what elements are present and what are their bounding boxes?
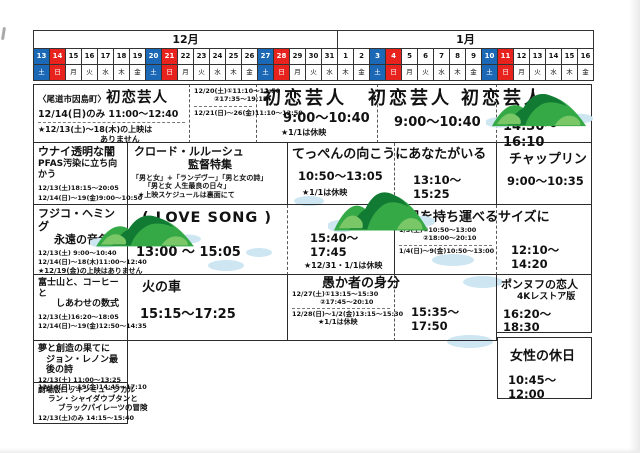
cell-text: 10:50～13:05 [298,170,390,184]
date-cell: 23 [194,49,210,65]
cell-text: ★1/1は休映 [318,318,390,326]
cell-text: 「男と女」+「ランデヴー」「男と女の詩」 [132,174,283,182]
weekday-cell: 火 [418,65,434,81]
schedule-sheet: 12月1月 1314151617181920212223242526272829… [0,0,640,453]
cell-text: てっぺんの向こうにあなたがいる [292,147,390,162]
cell-divider [292,308,390,309]
cell-pont-neuf: ポンヌフの恋人4Kレストア版16:20～18:30 [497,275,592,333]
date-cell: 10 [482,49,498,65]
cell-text: ウナイ透明な闇 [38,146,123,159]
cell-chaplin: チャップリン9:00～10:35 [497,143,592,205]
date-cell: 16 [82,49,98,65]
cell-orokamono-2: 15:35～17:50 [395,275,497,341]
island-icon [90,208,202,250]
weekday-cell: 金 [354,65,370,81]
weekday-cell: 水 [322,65,338,81]
weekday-cell: 土 [482,65,498,81]
date-cell: 2 [354,49,370,65]
weekday-cell: 水 [546,65,562,81]
island-icon [328,183,436,235]
weekday-cell: 木 [226,65,242,81]
month-cell: 1月 [338,31,594,49]
date-cell: 19 [130,49,146,65]
weekday-cell: 火 [306,65,322,81]
cell-text: ポンヌフの恋人 [501,279,587,292]
weekday-cell: 土 [370,65,386,81]
cell-text: PFAS汚染に立ち向かう [38,159,123,180]
date-cell: 28 [274,49,290,65]
weekday-cell: 日 [498,65,514,81]
date-cell: 20 [146,49,162,65]
cell-divider [194,106,252,107]
date-cell: 9 [466,49,482,65]
calendar: 12月1月 1314151617181920212223242526272829… [33,30,594,81]
scan-edge-right [629,0,640,453]
cell-hatsukoi-week3: 初恋芸人9:00～10:40★1/1は休映 [257,84,378,143]
cell-text: ②18:00～20:10 [423,235,492,243]
date-cell: 7 [434,49,450,65]
cell-text: 15:40～17:45 [310,232,390,259]
cell-text: しあわせの数式 [56,299,123,310]
date-cell: 21 [162,49,178,65]
cell-text: ★上映スケジュールは裏面にて [138,191,283,199]
cell-text: 夢と創造の果てに [38,344,123,355]
cell-ani-size-2: 12:10～14:20 [497,205,592,275]
cell-text: 4Kレストア版 [517,292,587,303]
cell-text: 初恋芸人 [263,88,373,109]
date-cell: 24 [210,49,226,65]
cell-text: 16:20～18:30 [503,308,587,335]
weekday-cell: 木 [114,65,130,81]
island-icon [486,86,594,130]
weekday-cell: 金 [130,65,146,81]
cell-text: ②17:35～19:15 [214,96,252,104]
cell-text: 「男と女 人生最良の日々」 [144,182,283,190]
weekday-cell: 火 [82,65,98,81]
cell-text: 12/21(日)～26(金)11:10～12:50 [194,110,252,118]
calendar-weekday-row: 土日月火水木金土日月火水木金土日月火水木金土日月火水木金土日月火水木金 [34,65,594,81]
weekday-cell: 水 [98,65,114,81]
cell-hinokuruma: 火の車15:15～17:25 [128,275,288,341]
cell-orokamono-1: 愚か者の身分12/27(土)①13:15～15:30②17:45～20:1012… [288,275,395,341]
date-cell: 1 [338,49,354,65]
cell-text: 12/13(土) 9:00～10:40 [38,250,123,258]
cell-text: ★12/13(土)～18(木)の上映は [38,125,185,134]
weekday-cell: 木 [450,65,466,81]
cell-text: 12/14(日)～19(金)9:00～10:50 [38,195,123,203]
date-cell: 4 [386,49,402,65]
calendar-date-row: 1314151617181920212223242526272829303112… [34,49,594,65]
date-cell: 22 [178,49,194,65]
cell-divider [399,245,492,246]
cell-text: ブラックパイレーツの冒険 [58,404,123,413]
cell-text: ②17:45～20:10 [320,299,390,307]
date-cell: 12 [514,49,530,65]
weekday-cell: 火 [194,65,210,81]
date-cell: 8 [450,49,466,65]
cell-yume-john-lennon: 夢と創造の果てにジョン・レノン最後の詩12/13(土) 11:00～13:251… [33,341,128,383]
scan-mark [1,27,6,40]
date-cell: 11 [498,49,514,65]
date-cell: 14 [50,49,66,65]
weekday-cell: 金 [242,65,258,81]
cell-text: 9:00～10:40 [283,111,373,126]
date-cell: 15 [66,49,82,65]
cell-text: 12/13(土)18:15～20:05 [38,185,123,193]
weekday-cell: 木 [338,65,354,81]
cell-text: 10:45～12:00 [508,374,587,401]
cell-text: 9:00～10:35 [507,175,587,189]
date-cell: 5 [402,49,418,65]
cell-text: 12/14(日)のみ 11:00～12:40 [38,109,185,120]
weekday-cell: 水 [210,65,226,81]
weekday-cell: 月 [66,65,82,81]
cell-text: 愚か者の身分 [322,276,390,291]
cell-text: ★1/1は休映 [281,128,373,137]
weekday-cell: 水 [434,65,450,81]
cell-hatsukoi-week2: 12/20(土)①11:10～12:50②17:35～19:1512/21(日)… [190,84,257,143]
cell-text: 12/13(土)16:20～18:05 [38,314,123,322]
date-cell: 13 [530,49,546,65]
date-cell: 6 [418,49,434,65]
cell-fujisan-coffee: 富士山と、コーヒーとしあわせの数式12/13(土)16:20～18:0512/1… [33,275,128,341]
date-cell: 3 [370,49,386,65]
calendar-month-row: 12月1月 [34,31,594,49]
cell-unai-pfas: ウナイ透明な闇PFAS汚染に立ち向かう12/13(土)18:15～20:0512… [33,143,128,205]
date-cell: 15 [562,49,578,65]
cell-text: ★12/31・1/1は休映 [304,261,390,270]
date-cell: 16 [578,49,594,65]
date-cell: 26 [242,49,258,65]
weekday-cell: 日 [162,65,178,81]
weekday-cell: 土 [34,65,50,81]
weekday-cell: 木 [562,65,578,81]
cell-josei-holiday: 女性の休日10:45～12:00 [497,337,592,399]
weekday-cell: 金 [578,65,594,81]
date-cell: 29 [290,49,306,65]
cell-text: ジョン・レノン最後の詩 [46,355,123,376]
weekday-cell: 月 [178,65,194,81]
date-cell: 13 [34,49,50,65]
cell-text: 15:35～17:50 [411,306,492,333]
cell-text: 監督特集 [188,159,283,172]
weekday-cell: 土 [258,65,274,81]
cell-lelouch-tokushu: クロード・ルルーシュ監督特集「男と女」+「ランデヴー」「男と女の詩」「男と女 人… [128,143,288,205]
cell-text: 9:00～10:40 [394,115,492,130]
cell-text: 12:10～14:20 [511,244,587,271]
cell-text: 12/14(日)～19(金)12:50～14:35 [38,323,123,331]
weekday-cell: 日 [386,65,402,81]
weekday-cell: 日 [50,65,66,81]
cell-text: 女性の休日 [510,349,587,364]
weekday-cell: 金 [466,65,482,81]
month-cell: 12月 [34,31,338,49]
date-cell: 17 [98,49,114,65]
cell-text: 12/13(土)のみ 14:15～15:40 [38,415,123,423]
cell-text: 〈尾道市因島町〉初恋芸人 [38,88,185,107]
cell-text: 富士山と、コーヒーと [38,278,123,299]
weekday-cell: 月 [514,65,530,81]
cell-hatsukoi-onomichi: 〈尾道市因島町〉初恋芸人12/14(日)のみ 11:00～12:40★12/13… [33,84,190,143]
cell-text: 〈尾道市因島町〉 [38,95,106,105]
date-cell: 14 [546,49,562,65]
scan-edge-bottom [0,448,640,453]
weekday-cell: 月 [290,65,306,81]
date-cell: 18 [114,49,130,65]
cell-text: 火の車 [142,280,283,295]
cell-text: 12/14(日)～18(木)11:00～12:40 [38,259,123,267]
date-cell: 31 [322,49,338,65]
weekday-cell: 日 [274,65,290,81]
weekday-cell: 月 [402,65,418,81]
cell-text: 1/4(日)～9(金)10:50～13:00 [399,248,492,256]
cell-text: 15:15～17:25 [140,307,283,322]
date-cell: 30 [306,49,322,65]
weekday-cell: 火 [530,65,546,81]
cell-text: 初恋芸人 [106,90,168,106]
cell-rockin-musical: 劇場版ロッキンミュージカルラン・シャイダウブタンとブラックパイレーツの冒険12/… [33,383,128,424]
date-cell: 27 [258,49,274,65]
weekday-cell: 土 [146,65,162,81]
cell-divider [38,122,185,123]
date-cell: 25 [226,49,242,65]
cell-text: チャップリン [509,152,587,167]
